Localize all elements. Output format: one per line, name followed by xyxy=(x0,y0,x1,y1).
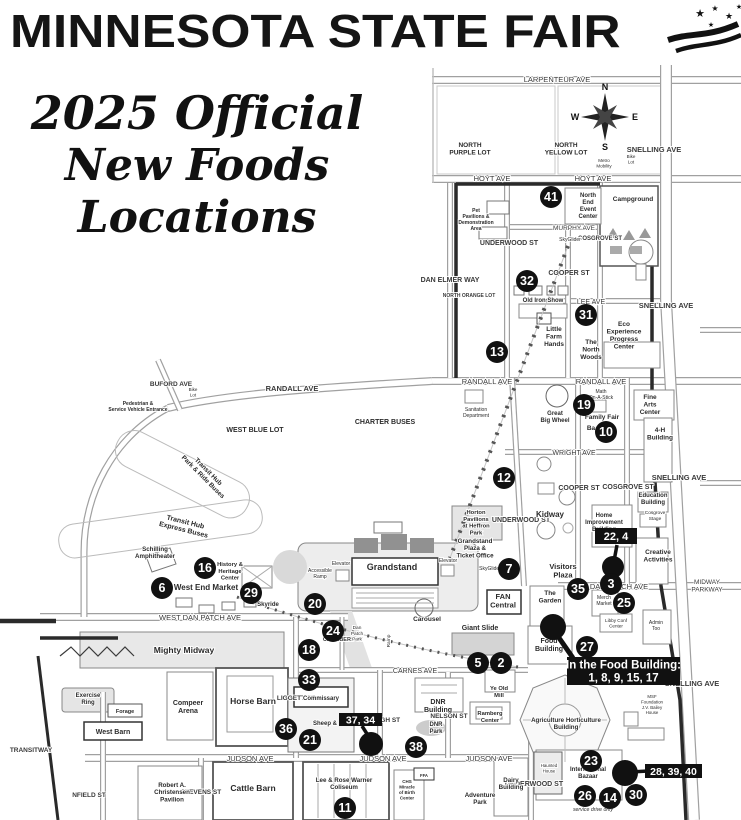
food-location-number: 33 xyxy=(302,673,316,687)
title-line-3: Locations xyxy=(22,192,372,244)
place-label: MerchMarket xyxy=(596,595,612,607)
street-label: SNELLING AVE xyxy=(639,301,694,310)
food-location-number: 24 xyxy=(326,624,340,638)
building xyxy=(624,712,638,726)
place-label: Family Fair xyxy=(585,414,620,421)
place-label: Old Iron Show xyxy=(523,298,564,304)
place-label: BikeLot xyxy=(189,387,198,398)
building xyxy=(381,534,407,550)
place-label: MSFFoundationJ.V. BaileyHouse xyxy=(641,694,664,715)
compass-direction-label: W xyxy=(571,112,580,122)
street-label: HOYT AVE xyxy=(474,174,511,183)
place-label: Campground xyxy=(613,196,653,203)
building xyxy=(441,565,454,576)
building xyxy=(222,602,235,610)
place-label: Cattle Barn xyxy=(230,783,275,793)
building xyxy=(537,457,551,471)
street-label: NORTH ORANGE LOT xyxy=(443,293,496,299)
page-title: 2025 Official New Foods Locations xyxy=(22,86,372,244)
callout-text: 22, 4 xyxy=(604,531,629,543)
street-label: COSGROVE ST xyxy=(602,484,654,491)
street-label: RANDALL AVE xyxy=(462,377,512,386)
fence-boundary xyxy=(38,656,58,820)
building xyxy=(176,598,192,607)
street-label: RANDALL AVE xyxy=(266,384,319,393)
food-location-number: 38 xyxy=(409,740,423,754)
street-label: DAN ELMER WAY xyxy=(421,277,480,284)
building xyxy=(636,264,646,280)
place-label: Transit HubPark & Ride Buses xyxy=(180,449,231,500)
place-label: EducationBuilding xyxy=(638,493,667,506)
street-label: COSGROVE ST xyxy=(578,236,622,242)
map-area xyxy=(558,86,662,174)
street-label: LARPENTEUR AVE xyxy=(524,75,591,84)
food-location-number: 20 xyxy=(308,597,322,611)
building xyxy=(410,538,434,553)
food-location-number: 16 xyxy=(198,561,212,575)
street-label: SNELLING AVE xyxy=(627,145,682,154)
place-label: SkyGlider xyxy=(479,566,501,572)
food-location-number: 3 xyxy=(608,577,615,591)
building xyxy=(487,201,509,214)
logo-star-icon: ★ xyxy=(711,4,718,13)
compass-direction-label: N xyxy=(602,82,609,92)
place-label: RambergCenter xyxy=(477,711,503,724)
food-location-number: 12 xyxy=(497,471,511,485)
place-label: VisitorsPlaza xyxy=(549,562,576,580)
place-label: Kidway xyxy=(536,510,565,519)
place-label: DNRPark xyxy=(429,722,443,735)
food-location-number: 6 xyxy=(159,581,166,595)
place-label: Forage xyxy=(116,709,134,715)
street-label: SNELLING AVE xyxy=(652,473,707,482)
street-label: BUFORD AVE xyxy=(150,381,193,388)
place-label: HauntedHouse xyxy=(541,763,558,773)
street-label: WRIGHT AVE xyxy=(552,450,596,457)
street-label: NFIELD ST xyxy=(72,792,106,799)
place-label: Elevator xyxy=(439,558,458,564)
place-label: WEST BLUE LOT xyxy=(226,427,284,434)
map-area xyxy=(273,550,307,584)
food-location-number: 14 xyxy=(603,791,617,805)
callout-text: 1, 8, 9, 15, 17 xyxy=(588,673,658,685)
street-label: MURPHY AVE xyxy=(553,225,596,232)
compass-direction-label: S xyxy=(602,142,608,152)
place-label: West End Market xyxy=(174,583,239,592)
place-label: Horse Barn xyxy=(230,696,276,706)
logo-star-icon: ★ xyxy=(736,3,741,11)
place-label: Elevator xyxy=(332,561,351,567)
place-label: Carousel xyxy=(413,616,441,623)
food-location-number: 27 xyxy=(580,640,594,654)
food-location-number: 35 xyxy=(571,582,585,596)
food-location-number: 25 xyxy=(617,596,631,610)
food-location-number: 23 xyxy=(584,754,598,768)
food-location-number: 11 xyxy=(338,801,351,815)
food-location-number: 19 xyxy=(577,398,591,412)
location-dot xyxy=(359,732,383,756)
street-label: CARNES AVE xyxy=(393,668,438,675)
street-label: RANDALL AVE xyxy=(576,377,626,386)
place-label: Sheep & xyxy=(313,721,338,727)
street-label: NELSON ST xyxy=(430,713,467,720)
food-location-number: 18 xyxy=(302,643,316,657)
place-label: BikeLot xyxy=(627,154,636,165)
location-dot xyxy=(540,614,566,640)
place-label: LittleFarmHands xyxy=(544,326,564,348)
food-location-number: 32 xyxy=(520,274,534,288)
food-location-number: 30 xyxy=(629,788,643,802)
building xyxy=(354,538,378,553)
building xyxy=(336,570,349,581)
location-dot xyxy=(612,760,638,786)
food-location-number: 31 xyxy=(579,308,593,322)
place-label: Giant Slide xyxy=(462,625,499,632)
building xyxy=(546,385,568,407)
street-label: JUDSON AVE xyxy=(227,754,274,763)
callout-text: 28, 39, 40 xyxy=(650,766,697,778)
place-label: Transit HubExpress Buses xyxy=(158,513,210,540)
place-label: Ramp xyxy=(386,634,392,647)
compass-direction-label: E xyxy=(632,112,638,122)
street-label: COOPER ST xyxy=(558,485,600,492)
place-label: SkyGlider xyxy=(559,237,581,243)
place-label: NorthEndEventCenter xyxy=(578,193,598,220)
map-area xyxy=(452,633,514,655)
food-location-number: 13 xyxy=(490,345,504,359)
place-label: DanPatchPark xyxy=(351,625,364,643)
map-area xyxy=(437,86,555,174)
minnesota-state-fair-logo: MINNESOTA STATE FAIR xyxy=(10,4,621,58)
street-label: HOYT AVE xyxy=(575,174,612,183)
title-line-2: New Foods xyxy=(22,140,372,192)
food-location-number: 26 xyxy=(578,789,592,803)
building xyxy=(479,227,507,239)
place-label: Pedestrian &Service Vehicle Entrance xyxy=(108,401,167,413)
food-location-number: 5 xyxy=(475,656,482,670)
food-location-number: 7 xyxy=(506,562,513,576)
street-label: TRANSITWAY xyxy=(10,747,53,754)
place-label: Skyride xyxy=(257,602,279,608)
building xyxy=(465,390,483,403)
building xyxy=(563,523,573,533)
building xyxy=(374,522,402,533)
street-label: COOPER ST xyxy=(548,270,590,277)
street-label: UNDERWOOD ST xyxy=(480,240,539,247)
food-location-number: 21 xyxy=(303,733,317,747)
street-label: WEST DAN PATCH AVE xyxy=(159,613,241,622)
logo-star-icon: ★ xyxy=(725,11,733,21)
street-label: JUDSON AVE xyxy=(360,754,407,763)
place-label: NORTHPURPLE LOT xyxy=(449,142,490,157)
building xyxy=(199,605,214,613)
street-label: JUDSON AVE xyxy=(466,754,513,763)
place-label: Mighty Midway xyxy=(154,645,215,655)
place-label: Ba xyxy=(587,425,596,432)
place-label: MetroMobility xyxy=(596,158,612,169)
place-label: AdventurePark xyxy=(465,792,496,806)
place-label: SanitationDepartment xyxy=(463,407,490,419)
callout-text: In the Food Building: xyxy=(566,660,681,672)
street-label: MIDWAYPARKWAY xyxy=(691,579,723,594)
callout-text: 37, 34 xyxy=(346,714,375,726)
building xyxy=(630,246,642,254)
food-location-number: 41 xyxy=(544,190,558,204)
place-label: CreativeActivities xyxy=(644,549,673,564)
new-foods-map-page: LARPENTEUR AVEHOYT AVEHOYT AVEMURPHY AVE… xyxy=(0,0,741,820)
place-label: Commissary xyxy=(303,696,340,702)
logo-star-icon: ★ xyxy=(708,21,714,29)
logo-star-icon: ★ xyxy=(695,8,705,20)
place-label: FFA xyxy=(420,773,428,778)
food-location-number: 29 xyxy=(244,586,258,600)
food-location-number: 10 xyxy=(599,425,613,439)
place-label: Grandstand xyxy=(367,562,418,572)
food-location-number: 36 xyxy=(279,722,293,736)
place-label: West Barn xyxy=(96,729,131,736)
building xyxy=(558,286,568,295)
place-label: NORTHYELLOW LOT xyxy=(545,142,588,157)
place-label: History &HeritageCenter xyxy=(217,562,243,582)
place-label: GreatBig Wheel xyxy=(540,411,569,424)
food-location-number: 2 xyxy=(498,656,505,670)
title-line-1: 2025 Official xyxy=(22,86,372,140)
building xyxy=(628,728,664,740)
building xyxy=(610,246,622,254)
building xyxy=(538,483,554,494)
place-label: CHARTER BUSES xyxy=(355,419,416,426)
street-label: LEE AVE xyxy=(577,299,606,306)
